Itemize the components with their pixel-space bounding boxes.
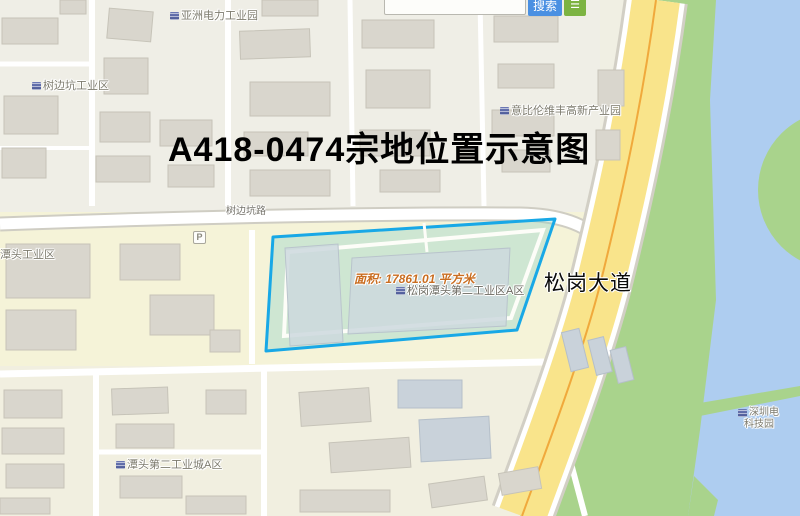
poi-songgang-tantou-industrial-a: 松岗潭头第二工业区A区 [396,285,524,297]
list-results-button[interactable]: ☰ [564,0,586,16]
map-canvas[interactable]: A418-0474宗地位置示意图 面积: 17861.01 平方米 松岗大道 树… [0,0,800,516]
poi-shenzhen-tech-line2: 科技园 [744,419,774,430]
page-title: A418-0474宗地位置示意图 [168,132,590,169]
poi-tantou-industrial: 潭头工业区 [0,249,55,261]
map-graphics [0,0,800,516]
building-icon [32,82,41,90]
poi-asia-power: 亚洲电力工业园 [170,10,258,22]
building-icon [738,409,747,417]
search-bar: 搜索 ☰ [384,0,586,16]
building-icon [116,461,125,469]
building-icon [396,287,405,295]
parking-icon: P [193,231,206,244]
poi-yibilun-hitech: 意比伦维丰高新产业园 [500,105,621,117]
list-icon: ☰ [570,0,580,11]
building-icon [500,107,509,115]
poi-shenzhen-tech-line1: 深圳电 [738,407,779,418]
avenue-label: 松岗大道 [544,272,632,295]
poi-shubiankeng-industrial: 树边坑工业区 [32,80,109,92]
search-input[interactable] [384,0,526,15]
search-button[interactable]: 搜索 [528,0,562,16]
north-road-label: 树边坑路 [226,206,266,217]
poi-tantou-second-city-a: 潭头第二工业城A区 [116,459,222,471]
building-icon [170,12,179,20]
